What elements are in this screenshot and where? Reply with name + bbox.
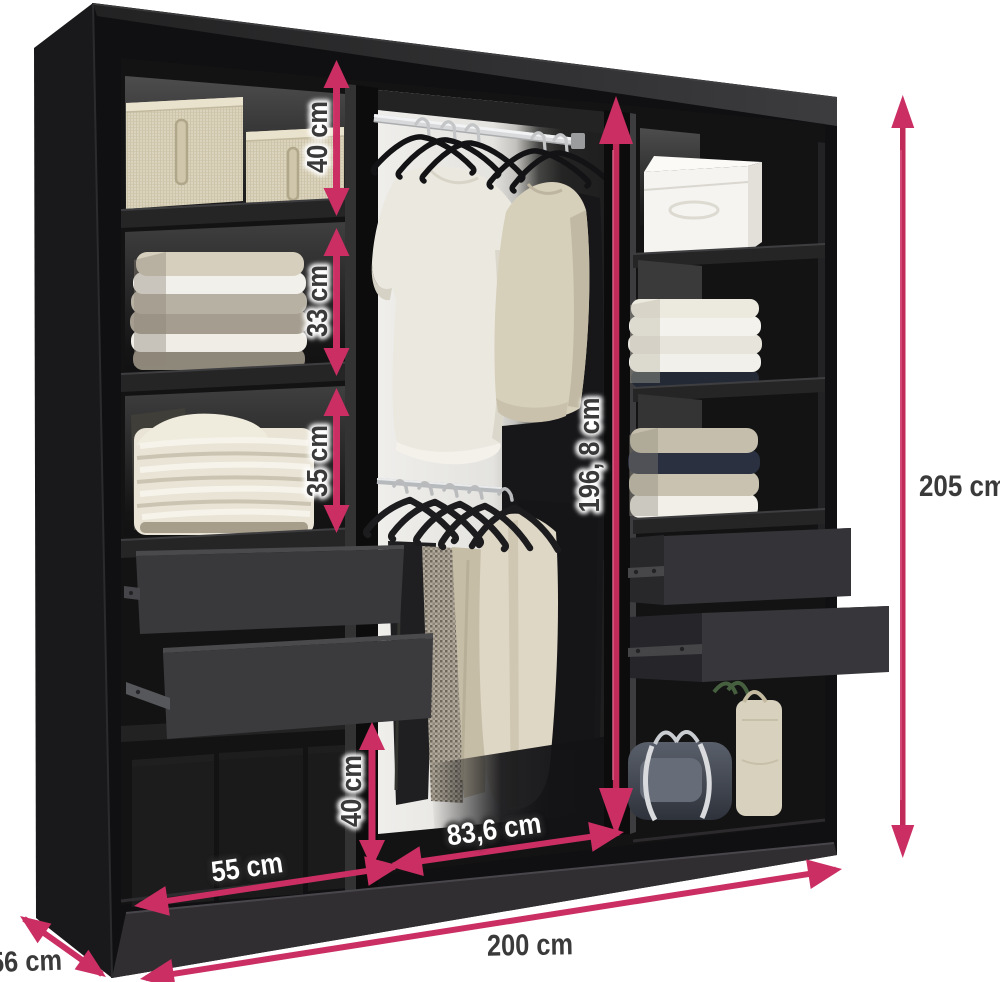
svg-text:56 cm: 56 cm xyxy=(0,945,63,979)
svg-text:205 cm: 205 cm xyxy=(919,470,1000,503)
svg-text:200 cm: 200 cm xyxy=(487,928,574,962)
svg-text:40 cm: 40 cm xyxy=(336,755,368,827)
svg-text:33 cm: 33 cm xyxy=(302,265,334,337)
svg-text:35 cm: 35 cm xyxy=(302,425,334,497)
svg-text:196, 8 cm: 196, 8 cm xyxy=(574,398,606,513)
svg-text:40 cm: 40 cm xyxy=(302,101,334,173)
